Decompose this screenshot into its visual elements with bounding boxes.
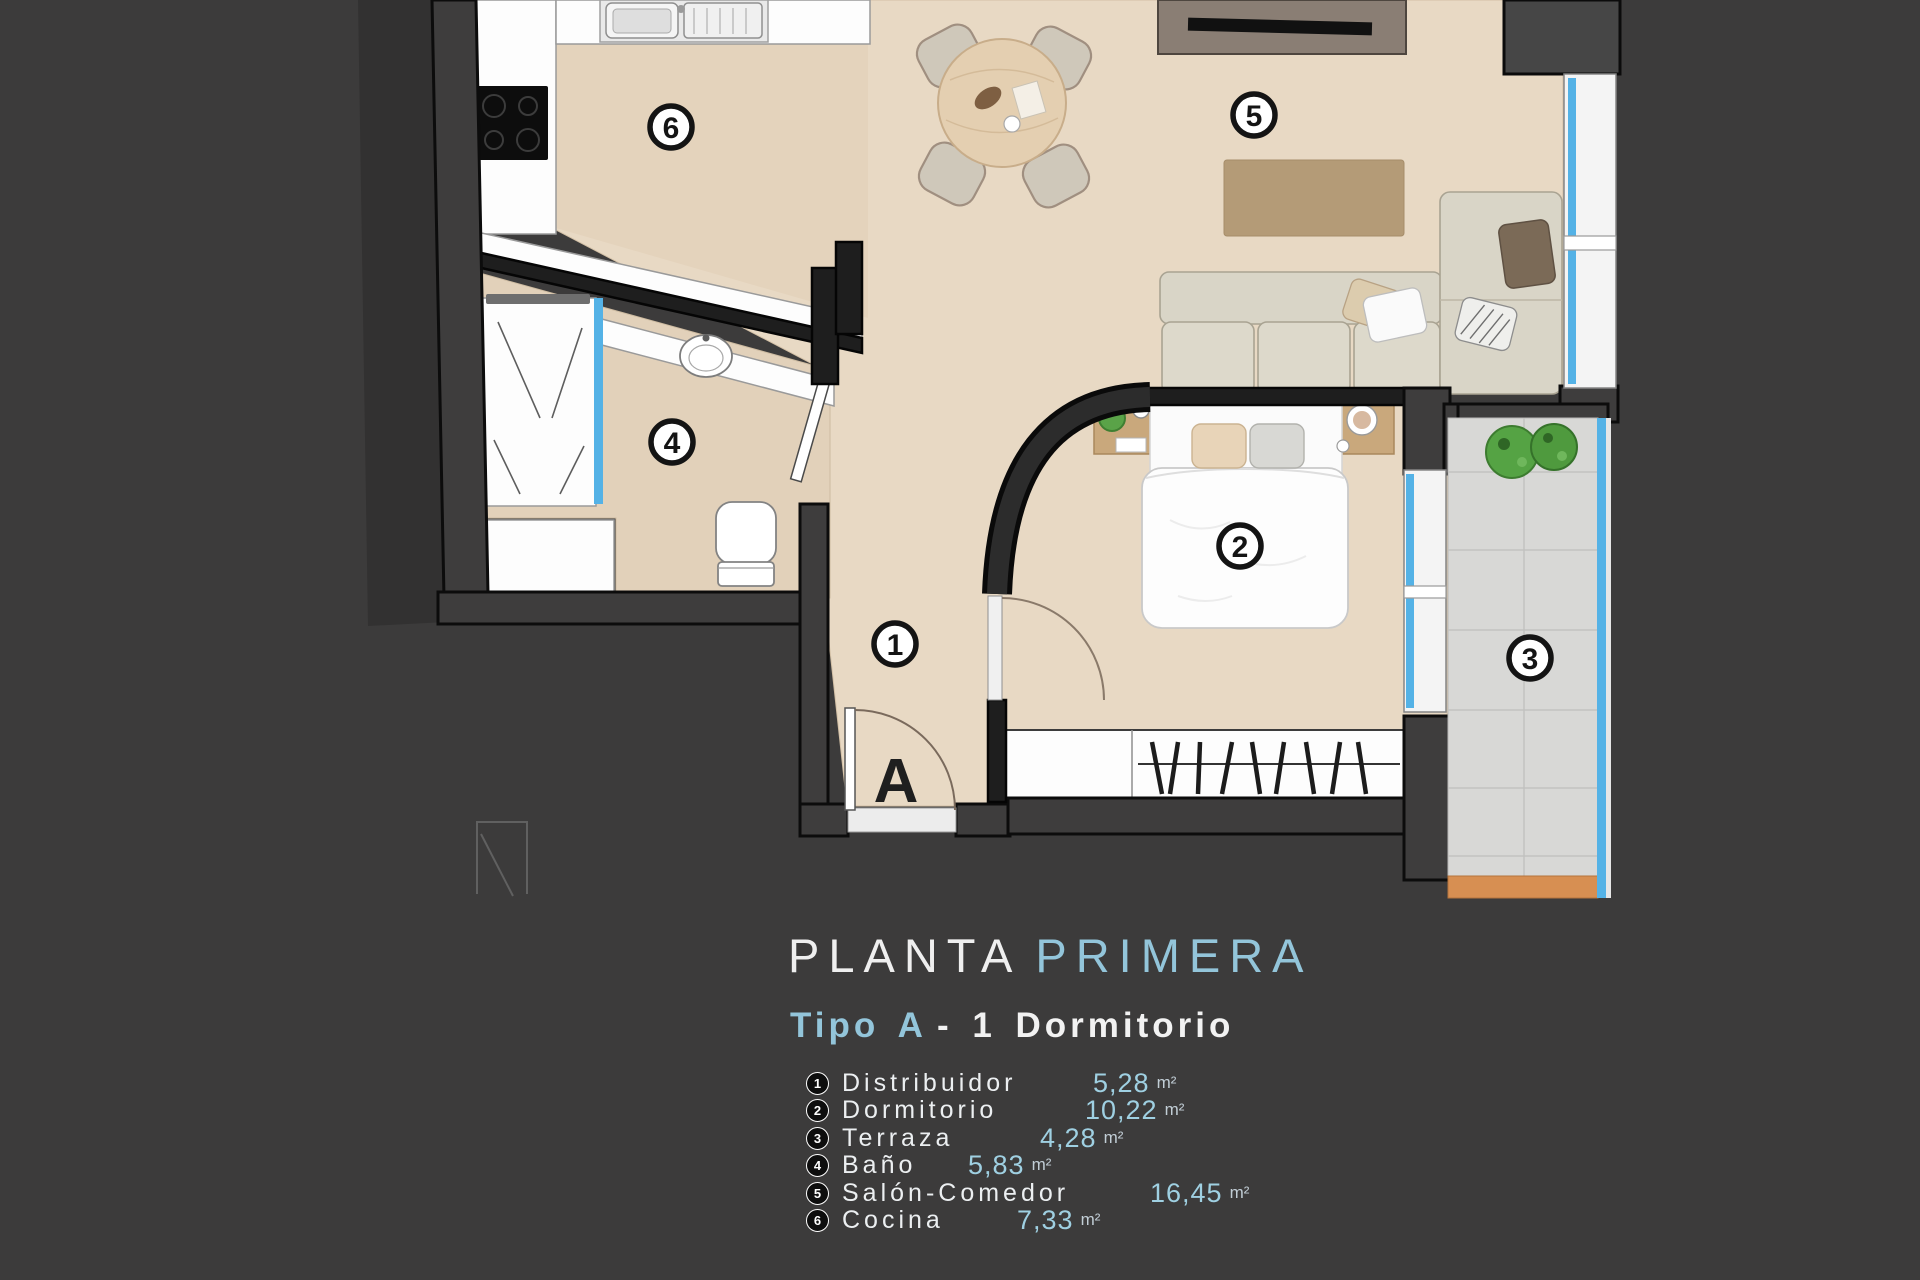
cooktop (476, 86, 548, 160)
page-subtitle: Tipo A- 1 Dormitorio (790, 1006, 1234, 1046)
entrance-label: A (874, 747, 919, 816)
title-part-white: PLANTA (788, 929, 1021, 982)
subtitle-rest: - 1 Dormitorio (937, 1006, 1234, 1045)
adjacent-unit-outline (477, 822, 527, 896)
room-marker-4: 4 (651, 421, 693, 463)
legend-value: 7,33 (1017, 1205, 1074, 1236)
bedroom-window (1404, 470, 1446, 712)
legend-name: Salón-Comedor (842, 1179, 1069, 1208)
legend-row-cocina: 6 Cocina 7,33m² (806, 1207, 944, 1233)
legend-bullet-4: 4 (806, 1154, 829, 1177)
wall-bath-bottom (438, 592, 828, 624)
toilet (716, 502, 776, 586)
legend-name: Dormitorio (842, 1096, 997, 1125)
legend-row-salon-comedor: 5 Salón-Comedor 16,45m² (806, 1180, 1069, 1206)
svg-text:2: 2 (1232, 531, 1249, 564)
wall-entrance-right (956, 804, 1010, 836)
svg-text:4: 4 (664, 427, 681, 460)
legend-row-terraza: 3 Terraza 4,28m² (806, 1125, 953, 1151)
room-marker-5: 5 (1233, 94, 1275, 136)
wall-terrace-corner (1404, 716, 1450, 880)
kitchen-sink (600, 0, 768, 42)
title-part-blue: PRIMERA (1035, 929, 1312, 982)
legend-value: 10,22 (1085, 1095, 1158, 1126)
room-marker-3: 3 (1509, 637, 1551, 679)
wall-notch-topright (1504, 0, 1620, 74)
wall-bath-right (812, 268, 838, 384)
legend-row-bano: 4 Baño 5,83m² (806, 1152, 916, 1178)
terrace-edge-strip (1448, 876, 1598, 898)
pillow-gray (1250, 424, 1304, 468)
legend-value: 4,28 (1040, 1123, 1097, 1154)
svg-text:6: 6 (663, 112, 680, 145)
rug (1224, 160, 1404, 236)
legend-bullet-6: 6 (806, 1209, 829, 1232)
legend-unit: m² (1104, 1128, 1124, 1148)
legend-unit: m² (1081, 1210, 1101, 1230)
legend-bullet-2: 2 (806, 1099, 829, 1122)
cup-small (1337, 440, 1349, 452)
room-marker-2: 2 (1219, 525, 1261, 567)
subtitle-type: Tipo A (790, 1006, 927, 1045)
svg-text:5: 5 (1246, 100, 1263, 133)
legend-bullet-1: 1 (806, 1072, 829, 1095)
dining-table (938, 39, 1066, 167)
wardrobe (1004, 730, 1404, 800)
pillow-beige (1192, 424, 1246, 468)
bathroom-closet (478, 520, 614, 594)
terrace-glass-rail (1597, 418, 1606, 898)
legend-unit: m² (1157, 1073, 1177, 1093)
svg-text:1: 1 (887, 629, 904, 662)
shower (478, 294, 603, 506)
page-title: PLANTAPRIMERA (788, 928, 1313, 983)
living-window (1564, 74, 1616, 388)
shower-rail (486, 294, 590, 304)
legend-name: Baño (842, 1151, 916, 1180)
legend-bullet-5: 5 (806, 1182, 829, 1205)
bedroom-door-leaf (988, 596, 1002, 700)
legend-row-distribuidor: 1 Distribuidor 5,28m² (806, 1070, 1016, 1096)
wall-bottom (1008, 798, 1408, 834)
legend-unit: m² (1165, 1100, 1185, 1120)
floorplan-page: 1 2 3 4 5 6 A PLANTAPRIMERA Tipo A- 1 Do… (0, 0, 1920, 1280)
legend-name: Terraza (842, 1124, 953, 1153)
legend-row-dormitorio: 2 Dormitorio 10,22m² (806, 1097, 997, 1123)
wall-peninsula-stub (836, 242, 862, 334)
entrance-door-leaf (845, 708, 855, 810)
bed (1142, 402, 1348, 628)
wall-hall-left (800, 504, 828, 836)
legend-value: 5,83 (968, 1150, 1025, 1181)
legend-unit: m² (1230, 1183, 1250, 1203)
wall-bedroom-left (988, 700, 1006, 802)
wall-entrance-left (800, 804, 848, 836)
room-marker-1: 1 (874, 623, 916, 665)
svg-text:3: 3 (1522, 643, 1539, 676)
legend-name: Cocina (842, 1206, 944, 1235)
room-marker-6: 6 (650, 106, 692, 148)
sofa-pillow-brown (1498, 219, 1556, 289)
tray (1116, 438, 1146, 452)
legend-bullet-3: 3 (806, 1127, 829, 1150)
shower-glass (594, 298, 603, 504)
legend-value: 16,45 (1150, 1178, 1223, 1209)
wall-bedroom-top (1140, 388, 1410, 405)
faucet-icon (703, 335, 710, 342)
cup (1004, 116, 1020, 132)
legend-unit: m² (1032, 1155, 1052, 1175)
legend-name: Distribuidor (842, 1069, 1016, 1098)
